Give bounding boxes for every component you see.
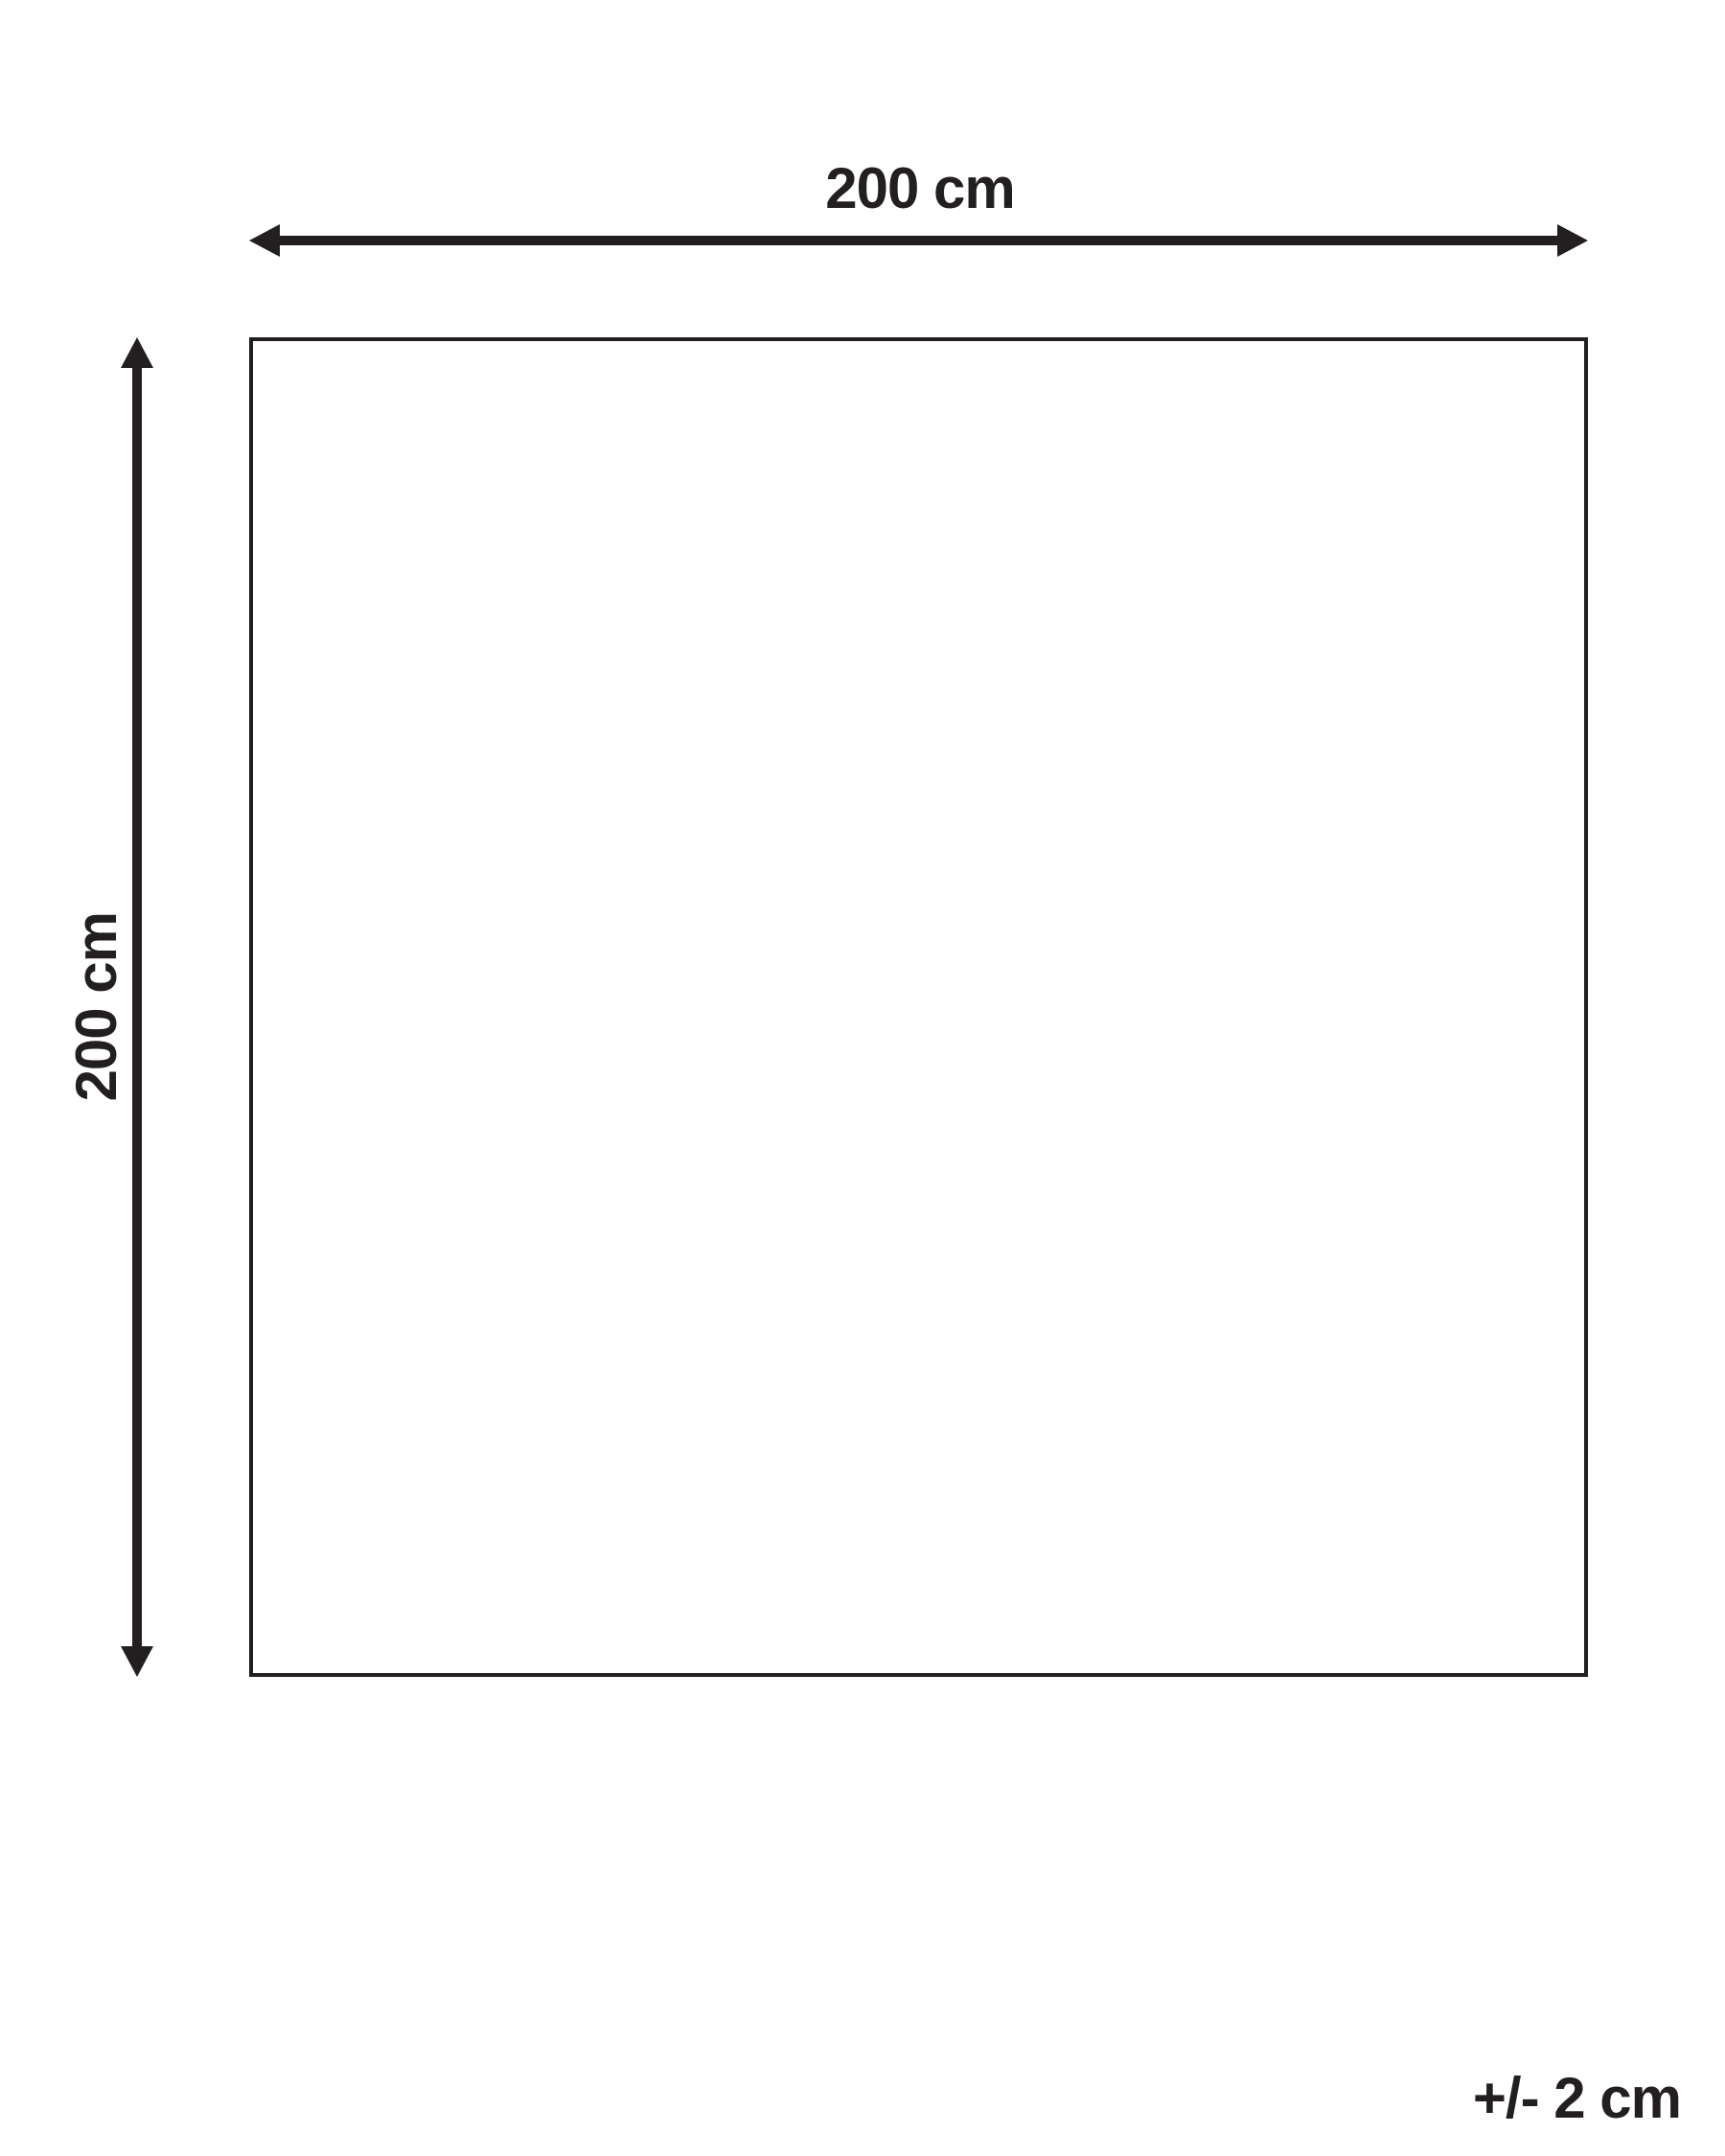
product-outline <box>249 337 1588 1677</box>
arrowhead-down-icon <box>121 1646 153 1677</box>
arrowhead-left-icon <box>249 224 280 257</box>
arrowhead-up-icon <box>121 337 153 368</box>
dimension-diagram: 200 cm 200 cm +/- 2 cm <box>0 0 1725 2156</box>
height-dimension-arrow-icon <box>120 337 154 1677</box>
tolerance-label: +/- 2 cm <box>1473 2070 1681 2127</box>
width-dimension-label: 200 cm <box>251 159 1589 218</box>
width-dimension-arrow-icon <box>249 223 1588 258</box>
arrow-shaft <box>132 360 142 1654</box>
arrow-shaft <box>272 236 1565 245</box>
arrowhead-right-icon <box>1557 224 1588 257</box>
